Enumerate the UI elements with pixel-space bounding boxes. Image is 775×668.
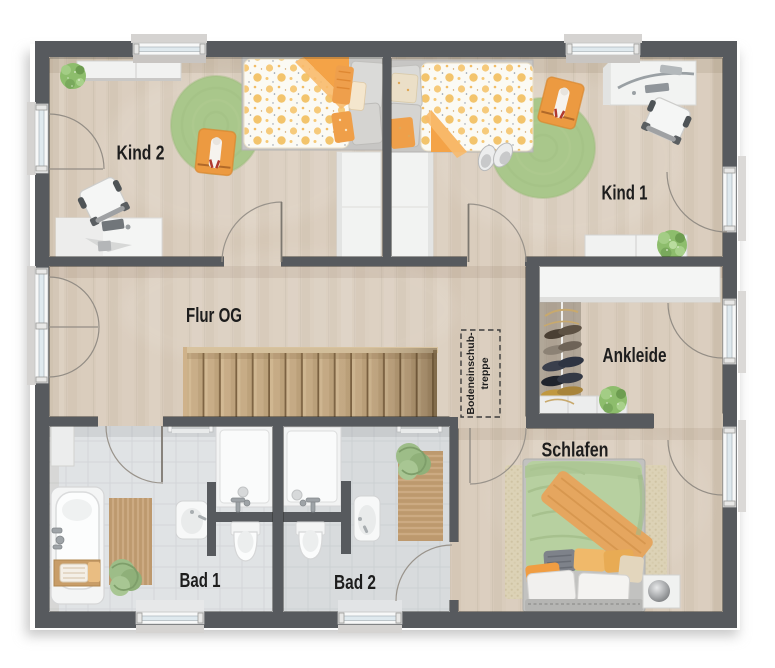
svg-text:Bodeneinschub-: Bodeneinschub- — [465, 332, 477, 415]
svg-text:treppe: treppe — [479, 357, 491, 389]
svg-text:Bad 2: Bad 2 — [334, 572, 376, 594]
svg-text:Bad 1: Bad 1 — [180, 570, 221, 592]
svg-text:Kind 2: Kind 2 — [117, 143, 165, 165]
svg-text:Kind 1: Kind 1 — [602, 183, 648, 205]
svg-text:Schlafen: Schlafen — [542, 440, 609, 462]
svg-text:Ankleide: Ankleide — [603, 345, 667, 367]
svg-text:Flur OG: Flur OG — [186, 305, 242, 327]
